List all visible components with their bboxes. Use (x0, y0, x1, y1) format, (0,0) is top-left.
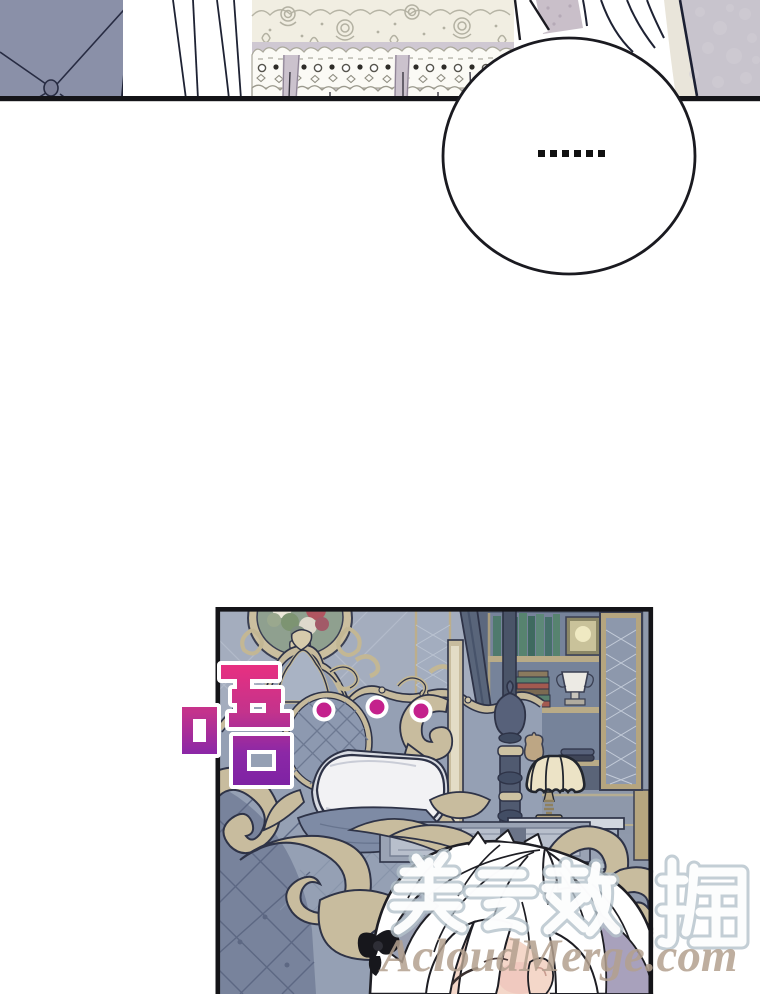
svg-text:AcloudMerge.com: AcloudMerge.com (378, 930, 737, 982)
